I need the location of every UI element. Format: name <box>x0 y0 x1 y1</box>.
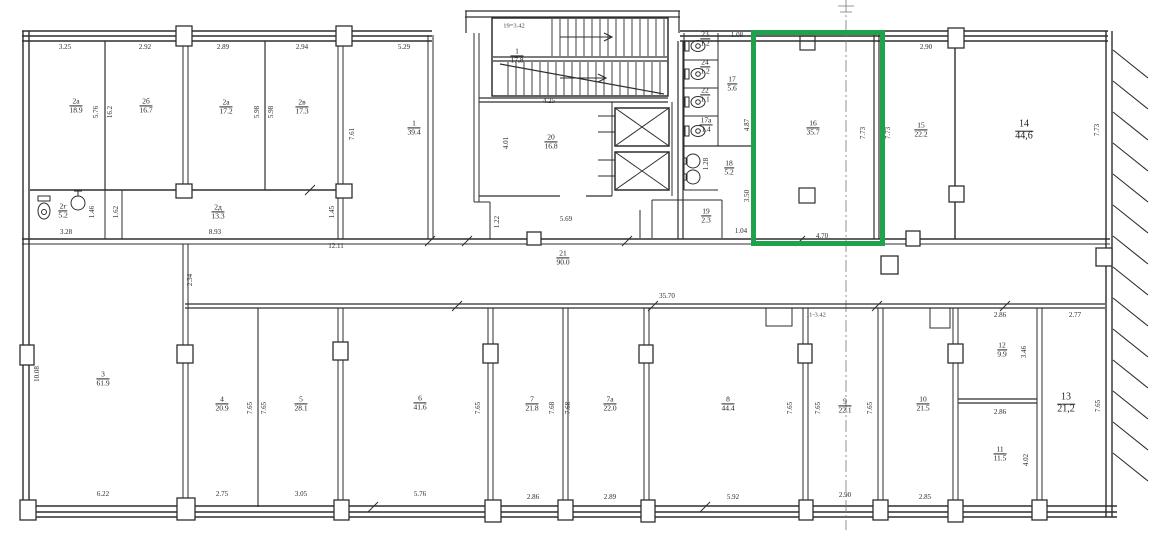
room-area: 17.2 <box>219 108 232 116</box>
room-label: 1111.5 <box>994 445 1007 462</box>
dimension-label: 1.04 <box>735 227 747 235</box>
dimension-label: 2.34 <box>186 274 194 286</box>
dimension-label: 6.22 <box>97 490 109 498</box>
room-label: 117,8 <box>510 47 523 64</box>
room-area: 16.8 <box>544 143 557 151</box>
room-label: 2д13.3 <box>211 203 224 220</box>
dimension-label: 7.65 <box>246 402 254 414</box>
room-label: 129.9 <box>997 341 1007 358</box>
dimension-label: 5.98 <box>267 106 275 118</box>
dimension-label: 1.28 <box>702 158 710 170</box>
dimension-label: 4.01 <box>502 137 510 149</box>
room-area: 41.6 <box>413 404 426 412</box>
room-label: 2в17.3 <box>295 98 308 115</box>
room-area: 1.2 <box>700 68 710 76</box>
room-label: 1321,2 <box>1057 393 1075 416</box>
dimension-label: 4.25 <box>543 97 555 105</box>
dimension-label: 5.98 <box>253 106 261 118</box>
dimension-label: 2.86 <box>994 408 1006 416</box>
room-label: 7а22.0 <box>603 395 616 412</box>
dimension-label: 3.50 <box>743 190 751 202</box>
dimension-label: 35.70 <box>659 292 675 300</box>
room-label: 528.1 <box>294 395 307 412</box>
dimension-label: 2.92 <box>139 43 151 51</box>
top-band-walls <box>22 35 1110 244</box>
room-label: 1021.5 <box>916 395 929 412</box>
dimension-label: 3.05 <box>295 490 307 498</box>
room-label: 2а17.2 <box>219 98 232 115</box>
room-label: 175.6 <box>727 75 737 92</box>
annotation-label: 19=3.42 <box>503 23 525 30</box>
room-label: 221.1 <box>700 86 710 103</box>
annotation-label: 11-3.42 <box>806 312 826 319</box>
room-area: 18.9 <box>69 107 82 115</box>
room-label: 2190.0 <box>556 249 569 266</box>
dimension-ticks <box>305 185 1010 512</box>
room-label: 185.2 <box>724 159 734 176</box>
wc-stall-walls <box>684 33 752 190</box>
room-label: 2б16.7 <box>139 97 152 114</box>
dimension-label: 7.65 <box>474 402 482 414</box>
dimension-label: 2.90 <box>839 491 851 499</box>
dimension-label: 2.86 <box>994 311 1006 319</box>
dimension-label: 1.62 <box>112 206 120 218</box>
room-label: 241.2 <box>700 58 710 75</box>
dimension-label: 3.46 <box>1020 346 1028 358</box>
room-label: 1444,6 <box>1015 120 1033 143</box>
dimension-label: 1.08 <box>731 31 743 39</box>
dimension-label: 5.76 <box>414 490 426 498</box>
room-label: 231.2 <box>700 30 710 47</box>
room-area: 90.0 <box>556 259 569 267</box>
toilet-icon <box>38 196 50 219</box>
dimension-label: 7.65 <box>814 402 822 414</box>
dimension-label: 7.73 <box>859 127 867 139</box>
room-label: 844.4 <box>721 395 734 412</box>
columns <box>20 26 1112 522</box>
dimension-label: 4.02 <box>1022 454 1030 466</box>
room-label: 139.4 <box>407 119 420 136</box>
room-area: 35.7 <box>806 129 819 137</box>
sink-icon <box>684 154 700 184</box>
room-area: 5.6 <box>727 85 737 93</box>
hatch-marks <box>1113 50 1148 481</box>
dimension-label: 1.22 <box>493 216 501 228</box>
elevator-icon <box>598 108 669 146</box>
dimension-label: 2.85 <box>919 493 931 501</box>
room-area: 1.1 <box>700 96 710 104</box>
dimension-label: 7.65 <box>866 402 874 414</box>
dimension-label: 5.76 <box>92 106 100 118</box>
room-area: 11.5 <box>994 455 1007 463</box>
dimension-label: 7.61 <box>348 128 356 140</box>
dimension-label: 7.65 <box>1094 400 1102 412</box>
room-area: 22.2 <box>914 131 927 139</box>
room-area: 22.0 <box>603 405 616 413</box>
room-area: 16.7 <box>139 107 152 115</box>
room-area: 2.3 <box>701 217 711 225</box>
dimension-label: 2.89 <box>217 43 229 51</box>
room-label: 2016.8 <box>544 133 557 150</box>
room-area: 20.9 <box>215 405 228 413</box>
dimension-label: 7.73 <box>1093 124 1101 136</box>
dimension-label: 5.92 <box>727 493 739 501</box>
room-area: 28.1 <box>294 405 307 413</box>
room-area: 21.8 <box>525 405 538 413</box>
room-label: 1522.2 <box>914 121 927 138</box>
dimension-label: 16.2 <box>106 106 114 118</box>
dimension-label: 7.68 <box>548 402 556 414</box>
dimension-label: 7.68 <box>564 402 572 414</box>
dimension-label: 10.08 <box>33 366 41 382</box>
room-label: 420.9 <box>215 395 228 412</box>
room-area: 5.2 <box>724 169 734 177</box>
room-label: 721.8 <box>525 395 538 412</box>
dimension-label: 2.77 <box>1069 311 1081 319</box>
room-label: 641.6 <box>413 394 426 411</box>
room-label: 17а1.4 <box>700 116 713 133</box>
room-area: 22.1 <box>838 407 851 415</box>
room-area: 1.2 <box>700 40 710 48</box>
room-area: 1.4 <box>700 126 713 134</box>
room-label: 2а18.9 <box>69 97 82 114</box>
dimension-label: 4.70 <box>816 232 828 240</box>
room-area: 21,2 <box>1057 405 1075 416</box>
dimension-label: 1.46 <box>88 206 96 218</box>
dimension-label: 4.87 <box>743 119 751 131</box>
room-area: 21.5 <box>916 405 929 413</box>
dimension-label: 2.90 <box>920 43 932 51</box>
dimension-label: 5.29 <box>398 43 410 51</box>
dimension-label: 7.73 <box>884 127 892 139</box>
floor-plan-canvas: 2а18.92б16.72а17.22в17.32г5.22д13.3139.4… <box>0 0 1163 550</box>
room-area: 13.3 <box>211 213 224 221</box>
room-area: 61.9 <box>96 380 109 388</box>
room-label: 922.1 <box>838 397 851 414</box>
room-label: 2г5.2 <box>58 202 67 219</box>
dimension-label: 12.11 <box>328 242 344 250</box>
elevator-icon <box>598 152 669 190</box>
sink-icon <box>71 191 85 210</box>
dimension-label: 8.93 <box>209 228 221 236</box>
dimension-label: 2.89 <box>604 493 616 501</box>
room-area: 5.2 <box>58 212 67 220</box>
bottom-band-walls <box>183 244 1105 507</box>
room-label: 192.3 <box>701 207 711 224</box>
dimension-label: 3.28 <box>60 228 72 236</box>
room-area: 17,8 <box>510 57 523 65</box>
room-area: 17.3 <box>295 108 308 116</box>
room-label: 361.9 <box>96 370 109 387</box>
room-area: 44.4 <box>721 405 734 413</box>
dimension-label: 7.65 <box>786 402 794 414</box>
dimension-label: 2.86 <box>527 493 539 501</box>
dimension-label: 2.94 <box>296 43 308 51</box>
dimension-label: 3.25 <box>59 43 71 51</box>
room-area: 9.9 <box>997 351 1007 359</box>
room-area: 44,6 <box>1015 132 1033 143</box>
dimension-label: 2.75 <box>216 490 228 498</box>
dimension-label: 1.45 <box>328 206 336 218</box>
dimension-label: 7.65 <box>260 402 268 414</box>
room-label: 1635.7 <box>806 119 819 136</box>
floor-plan-drawing <box>0 0 1163 550</box>
dimension-label: 5.69 <box>560 215 572 223</box>
room-area: 39.4 <box>407 129 420 137</box>
